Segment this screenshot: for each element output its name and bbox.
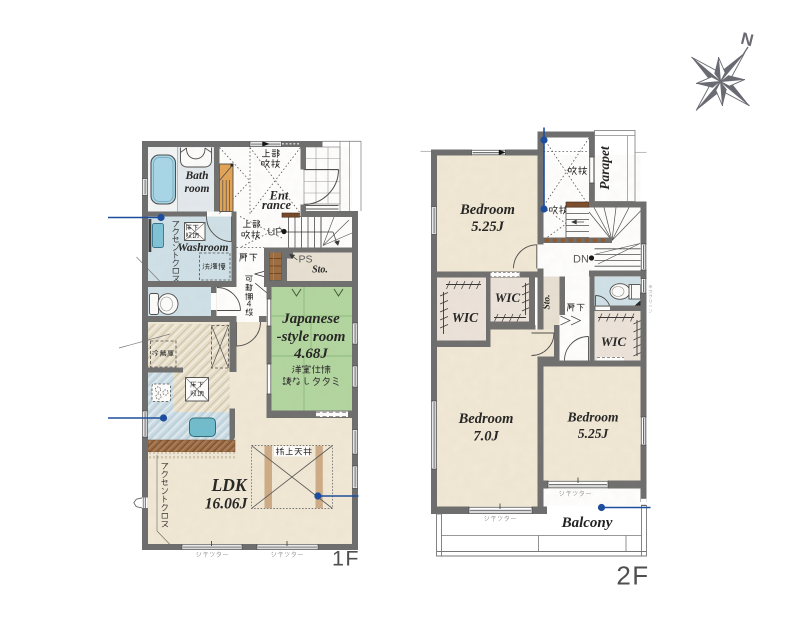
svg-text:1F: 1F [332, 547, 360, 571]
svg-text:2F: 2F [616, 561, 649, 591]
svg-text:Balcony: Balcony [561, 515, 613, 531]
